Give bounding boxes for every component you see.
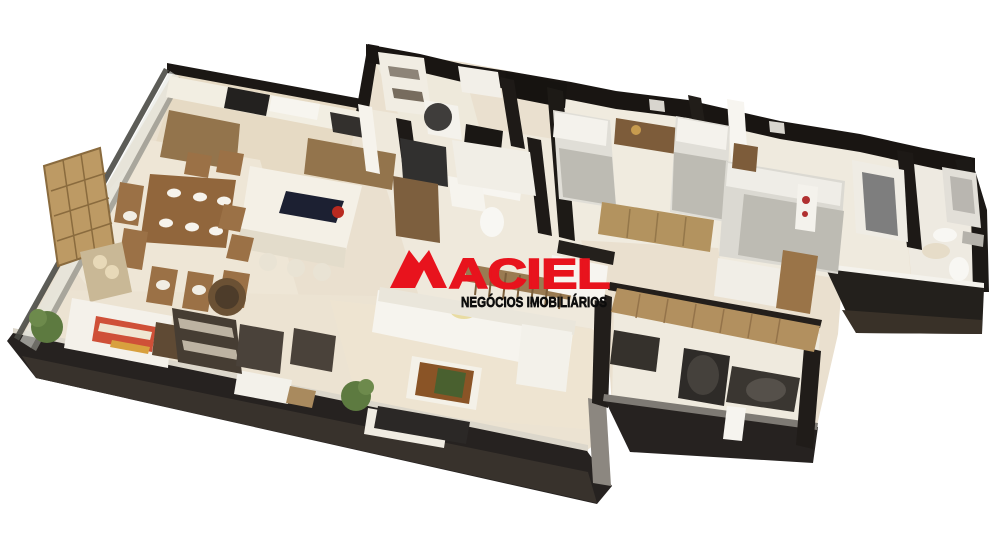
svg-text:ACIEL: ACIEL	[449, 250, 610, 297]
svg-text:NEGÓCIOS IMOBILIÁRIOS: NEGÓCIOS IMOBILIÁRIOS	[461, 293, 607, 311]
